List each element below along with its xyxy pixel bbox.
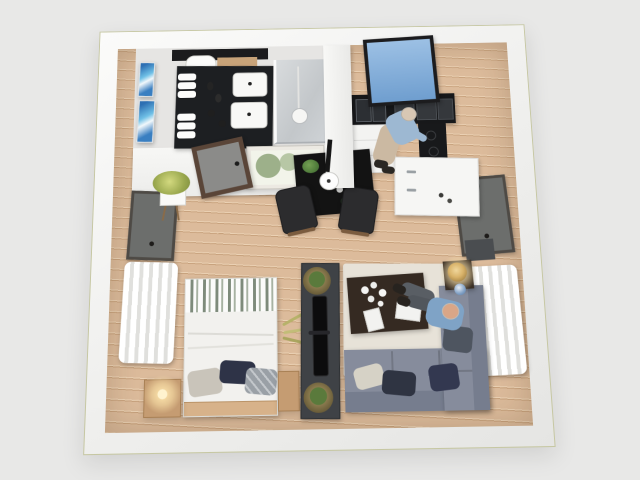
flower [378, 289, 386, 297]
bathroom-door [197, 142, 248, 194]
towel-roll [177, 131, 196, 138]
bathroom-sink-1 [233, 72, 268, 97]
striped-blanket [185, 278, 276, 312]
towel-roll [178, 73, 196, 80]
burner [428, 147, 439, 157]
flower [367, 295, 374, 302]
cook-shoe [381, 166, 395, 175]
bedroom-curtains [118, 262, 178, 364]
towel-roll [177, 122, 196, 129]
blue-vase [454, 283, 466, 295]
sofa-pillow-navy [381, 370, 416, 397]
duvet-fold [188, 332, 274, 335]
bathroom-sink-2 [231, 102, 268, 129]
countertop-jar [447, 199, 452, 204]
burner [426, 131, 437, 141]
apartment-outer-walls [83, 24, 556, 455]
dining-chair-right [337, 185, 379, 234]
kitchen-skylight-window [363, 35, 440, 107]
walk-in-shower [274, 59, 327, 144]
blue-abstract-art-2 [136, 100, 155, 143]
pillow-plaid [244, 367, 278, 396]
kitchen-island [394, 157, 479, 217]
towel-roll [178, 82, 196, 89]
blue-abstract-art-1 [138, 62, 156, 97]
pillow-beige [187, 367, 223, 398]
flower [370, 282, 377, 289]
towel-roll [178, 91, 196, 98]
tv-screen [312, 296, 329, 377]
floor-plan-scene [0, 0, 640, 480]
drawer-handle [407, 170, 416, 173]
sofa-pillow-navy-2 [428, 363, 461, 393]
magazine-card [363, 307, 384, 332]
duvet-fold [188, 343, 274, 350]
countertop-jar [439, 193, 444, 198]
flower [377, 301, 383, 307]
bed [183, 277, 278, 417]
tv-stand-bar [309, 331, 330, 335]
drawer-handle [407, 189, 416, 192]
flower [361, 286, 369, 294]
towel-roll [177, 113, 196, 120]
sky-view [367, 39, 436, 103]
nightstand-right [278, 371, 300, 412]
headboard [184, 400, 277, 416]
